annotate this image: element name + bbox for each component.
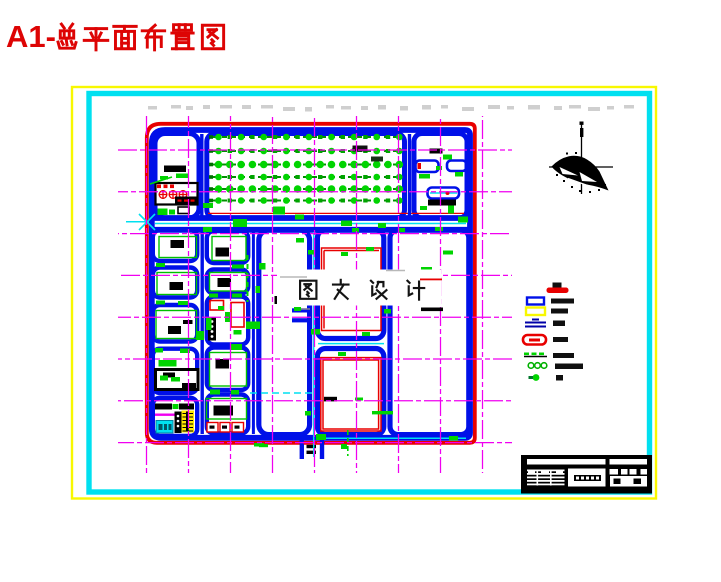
svg-text:A1-: A1-: [6, 19, 56, 54]
